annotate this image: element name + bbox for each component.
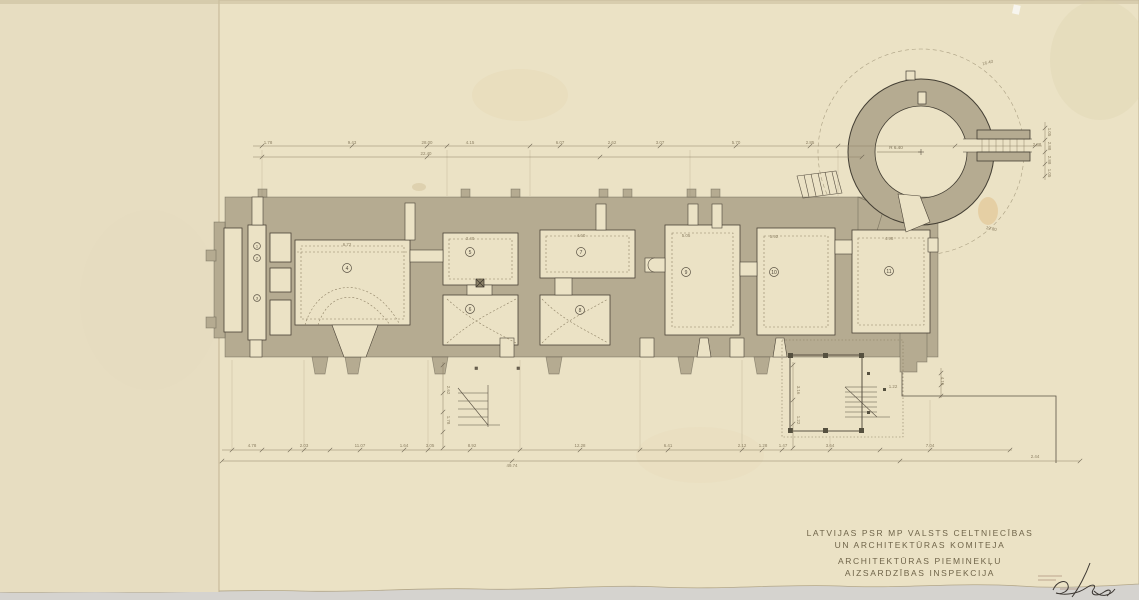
dimension-text: 2.88	[1033, 142, 1042, 147]
svg-text:7: 7	[580, 250, 583, 256]
tower-notch-inner	[918, 92, 926, 104]
svg-text:9: 9	[685, 270, 688, 276]
bridge-parapet-north	[977, 130, 1030, 139]
dimension-text: 2.88	[1047, 142, 1052, 151]
dimension-text: 1.78	[446, 416, 451, 425]
bridge-parapet-south	[977, 152, 1030, 161]
dimension-text: 3.64	[826, 443, 835, 448]
title-block: LATVIJAS PSR MP VALSTS CELTNIECĪBAS UN A…	[796, 527, 1044, 579]
svg-text:6: 6	[469, 307, 472, 313]
dimension-text: 1.64	[400, 443, 409, 448]
svg-text:10: 10	[771, 270, 777, 276]
org-line-2: UN ARCHITEKTŪRAS KOMITEJA	[796, 539, 1044, 551]
dimension-text: 3.16	[796, 386, 801, 395]
room-9	[665, 225, 740, 335]
dimension-text: 1.22	[889, 384, 898, 389]
sheet-top-shadow	[0, 0, 1139, 4]
dimension-text: 22.40	[421, 151, 433, 156]
dimension-text: 6.07	[556, 140, 565, 145]
dimension-text: 4.15	[466, 140, 475, 145]
room-8	[540, 295, 610, 345]
dimension-text: 7.04	[926, 443, 935, 448]
dimension-text: 2.12	[738, 443, 747, 448]
svg-text:8: 8	[579, 308, 582, 314]
org-line-1: LATVIJAS PSR MP VALSTS CELTNIECĪBAS	[796, 527, 1044, 539]
dimension-text: 9.43	[348, 140, 357, 145]
floor-plan-canvas: 28.0022.401.789.434.156.072.623.075.702.…	[0, 0, 1139, 600]
dimension-text: 2.88	[1047, 156, 1052, 165]
dimension-text: 2.62	[446, 386, 451, 395]
room-10	[757, 228, 835, 335]
dimension-text: 1.05	[1047, 128, 1052, 137]
tower-notch-outer	[906, 71, 915, 80]
room-4	[295, 240, 410, 325]
dimension-text: 1.22	[796, 416, 801, 425]
tower-radius-label: R 6.40	[889, 145, 903, 150]
room-7	[540, 230, 635, 278]
svg-text:5: 5	[469, 250, 472, 256]
dimension-text: 28.00	[422, 140, 434, 145]
dimension-text: 11.07	[355, 443, 366, 448]
svg-text:11: 11	[886, 269, 891, 275]
dimension-text: 2.44	[1031, 454, 1040, 459]
dimension-text: 1.47	[779, 443, 788, 448]
dimension-text: 4.15	[940, 377, 945, 386]
dimension-text: 3.05	[426, 443, 435, 448]
room-outshot	[224, 228, 242, 332]
bridge-deck	[963, 139, 1032, 152]
dimension-text: 4.60	[577, 233, 586, 238]
dimension-text: 12.28	[575, 443, 587, 448]
dimension-text: 4.78	[248, 443, 257, 448]
dimension-text: 6.41	[664, 443, 673, 448]
svg-text:4: 4	[346, 266, 349, 272]
column-marker	[476, 279, 484, 287]
dimension-text: 1.05	[1047, 169, 1052, 178]
dimension-text: 2.03	[300, 443, 309, 448]
room-11	[852, 230, 930, 333]
org-line-3: ARCHITEKTŪRAS PIEMINEKĻU	[796, 555, 1044, 567]
dimension-text: 5.05	[682, 233, 691, 238]
dimension-text: 2.85	[806, 140, 815, 145]
room-5	[443, 233, 518, 285]
org-line-4: AIZSARDZĪBAS INSPEKCIJA	[796, 567, 1044, 579]
dimension-text: 8.92	[468, 443, 477, 448]
scanned-drawing-sheet: 28.0022.401.789.434.156.072.623.075.702.…	[0, 0, 1139, 600]
dimension-text: 1.78	[264, 140, 273, 145]
room-6	[443, 295, 518, 345]
dimension-text: 6.72	[343, 242, 352, 247]
dimension-text: 2.62	[608, 140, 617, 145]
dimension-text: 49.74	[507, 463, 519, 468]
dimension-text: 5.70	[732, 140, 741, 145]
dimension-text: 3.07	[656, 140, 665, 145]
dimension-text: 4.98	[885, 236, 894, 241]
dimension-text: 1.28	[759, 443, 768, 448]
dimension-text: 3.40	[466, 236, 475, 241]
dimension-text: 5.92	[770, 234, 779, 239]
